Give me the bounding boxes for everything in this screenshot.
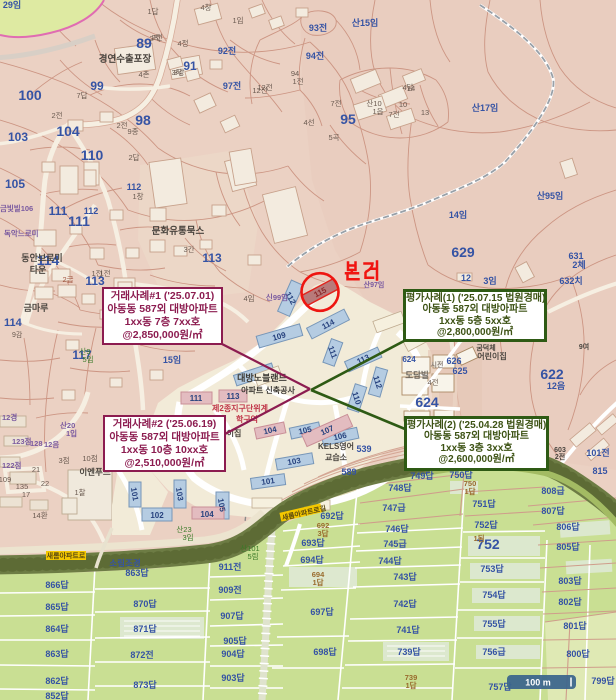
svg-text:92전: 92전 (218, 45, 236, 56)
svg-text:95: 95 (340, 111, 356, 127)
svg-text:743답: 743답 (393, 571, 417, 582)
svg-text:112: 112 (84, 206, 99, 216)
svg-text:5림: 5림 (247, 552, 258, 561)
svg-text:694답: 694답 (300, 554, 324, 565)
svg-text:863답: 863답 (125, 567, 149, 578)
svg-text:802답: 802답 (558, 596, 582, 607)
svg-text:589: 589 (341, 467, 356, 477)
svg-text:864답: 864답 (45, 623, 69, 634)
svg-text:독악느로미: 독악느로미 (4, 228, 39, 238)
svg-text:2답: 2답 (128, 152, 139, 162)
svg-text:10점: 10점 (82, 453, 97, 463)
svg-text:742답: 742답 (393, 598, 417, 609)
svg-text:104: 104 (200, 510, 214, 519)
svg-text:3임: 3임 (483, 275, 496, 286)
svg-text:904답: 904답 (221, 648, 245, 659)
svg-text:3점: 3점 (58, 455, 69, 465)
svg-text:629: 629 (451, 244, 475, 260)
svg-text:10: 10 (399, 100, 407, 109)
svg-text:863답: 863답 (45, 648, 69, 659)
svg-text:1됨: 1됨 (473, 533, 484, 543)
svg-text:111: 111 (49, 204, 68, 218)
svg-text:872전: 872전 (130, 649, 153, 660)
svg-text:754답: 754답 (482, 589, 506, 600)
svg-text:신99임: 신99임 (266, 292, 288, 302)
svg-text:1찰: 1찰 (74, 487, 85, 497)
svg-text:755답: 755답 (482, 618, 506, 629)
svg-text:693답: 693답 (301, 537, 325, 548)
svg-text:805답: 805답 (556, 541, 580, 552)
svg-text:금마루: 금마루 (24, 302, 49, 313)
svg-text:803답: 803답 (558, 575, 582, 586)
svg-text:4정: 4정 (177, 38, 188, 48)
svg-text:539: 539 (356, 444, 371, 454)
svg-text:102: 102 (150, 511, 164, 520)
svg-text:1입: 1입 (66, 428, 77, 438)
svg-text:1답: 1답 (147, 6, 158, 16)
svg-text:굼덕체: 굼덕체 (476, 343, 495, 352)
svg-text:12경: 12경 (2, 412, 17, 422)
svg-text:7답: 7답 (76, 90, 87, 100)
svg-text:697답: 697답 (310, 606, 334, 617)
svg-text:15임: 15임 (163, 354, 181, 365)
svg-text:911전: 911전 (219, 561, 242, 572)
svg-text:3작: 3작 (171, 67, 182, 77)
svg-text:746답: 746답 (385, 523, 409, 534)
svg-text:문화유통묵스: 문화유통묵스 (152, 225, 205, 237)
svg-text:4촌: 4촌 (138, 70, 149, 79)
svg-text:800답: 800답 (566, 648, 590, 659)
svg-text:105: 105 (5, 177, 25, 191)
svg-text:752답: 752답 (474, 519, 498, 530)
svg-text:경연수출포장: 경연수출포장 (99, 53, 152, 65)
svg-text:865답: 865답 (45, 601, 69, 612)
svg-text:2전: 2전 (116, 120, 127, 130)
svg-text:13: 13 (421, 108, 429, 117)
svg-text:123점: 123점 (12, 436, 32, 446)
svg-text:1임: 1임 (232, 16, 243, 25)
svg-text:852답: 852답 (45, 690, 69, 700)
svg-text:739답: 739답 (397, 646, 421, 657)
svg-text:1읍: 1읍 (372, 107, 383, 116)
svg-text:시전: 시전 (431, 360, 444, 369)
svg-text:어린이집: 어린이집 (477, 351, 506, 361)
svg-text:745급: 745급 (383, 539, 407, 549)
svg-text:4임: 4임 (243, 294, 254, 303)
svg-text:909전: 909전 (218, 584, 241, 595)
svg-text:622: 622 (540, 366, 564, 382)
svg-text:14환: 14환 (32, 510, 47, 520)
svg-text:100 m: 100 m (525, 678, 551, 688)
svg-text:799답: 799답 (591, 675, 615, 686)
svg-text:866답: 866답 (45, 579, 69, 590)
svg-text:타운: 타운 (30, 264, 47, 275)
svg-text:905답: 905답 (223, 635, 247, 646)
svg-text:2전: 2전 (51, 110, 62, 120)
svg-text:9감: 9감 (12, 331, 23, 339)
svg-text:112: 112 (127, 182, 142, 192)
svg-text:5임: 5임 (82, 355, 93, 364)
svg-text:624: 624 (402, 355, 416, 364)
svg-text:749답: 749답 (410, 470, 434, 481)
svg-text:747급: 747급 (382, 503, 406, 513)
svg-text:101: 101 (261, 476, 276, 487)
svg-text:751답: 751답 (472, 498, 496, 509)
svg-text:128: 128 (30, 439, 43, 448)
svg-text:1답: 1답 (312, 577, 323, 587)
svg-text:동안브로미: 동안브로미 (21, 252, 62, 263)
svg-text:12음: 12음 (547, 381, 565, 391)
svg-text:114: 114 (4, 317, 23, 329)
svg-text:1전: 1전 (292, 76, 303, 86)
svg-text:862답: 862답 (45, 675, 69, 686)
svg-text:2전: 2전 (555, 452, 565, 461)
svg-text:110: 110 (81, 147, 104, 163)
svg-text:94전: 94전 (306, 50, 324, 61)
svg-text:아파트 신축공사: 아파트 신축공사 (241, 385, 295, 395)
svg-text:97전: 97전 (223, 80, 241, 91)
svg-text:금빛빌106: 금빛빌106 (0, 203, 33, 213)
svg-text:98: 98 (135, 112, 151, 128)
svg-text:603: 603 (554, 447, 566, 454)
svg-text:806답: 806답 (556, 521, 580, 532)
svg-text:1창: 1창 (132, 192, 143, 201)
svg-text:3답: 3답 (317, 528, 328, 538)
svg-text:14임: 14임 (449, 209, 467, 220)
svg-text:12전: 12전 (252, 85, 267, 95)
svg-text:1답: 1답 (464, 486, 475, 496)
svg-text:808급: 808급 (541, 486, 565, 496)
svg-text:12음: 12음 (44, 439, 59, 449)
svg-text:산95임: 산95임 (537, 190, 564, 201)
svg-text:교습소: 교습소 (325, 452, 348, 462)
svg-text:626: 626 (446, 356, 461, 366)
svg-text:도담빌: 도담빌 (405, 370, 429, 380)
svg-text:1답: 1답 (405, 680, 416, 690)
svg-text:산15임: 산15임 (352, 17, 379, 28)
svg-text:624: 624 (415, 394, 439, 410)
svg-text:101전: 101전 (586, 447, 609, 458)
svg-text:새롬아파트로: 새롬아파트로 (47, 551, 86, 560)
svg-text:29임: 29임 (3, 0, 21, 10)
svg-text:7전: 7전 (388, 109, 399, 119)
svg-text:17: 17 (22, 490, 30, 499)
svg-text:7전: 7전 (330, 98, 341, 108)
svg-text:9여: 9여 (579, 342, 589, 351)
svg-text:93전: 93전 (309, 22, 327, 33)
svg-text:4창: 4창 (200, 3, 211, 12)
svg-text:3임: 3임 (182, 533, 193, 542)
svg-text:122점: 122점 (2, 460, 22, 470)
svg-text:104: 104 (56, 123, 80, 139)
svg-text:산97임: 산97임 (364, 280, 385, 289)
svg-text:873답: 873답 (133, 679, 157, 690)
svg-text:632치: 632치 (559, 275, 582, 286)
svg-text:5곡: 5곡 (328, 133, 339, 142)
svg-text:KELS영어: KELS영어 (318, 441, 354, 451)
svg-text:22: 22 (41, 479, 49, 488)
svg-text:625: 625 (452, 366, 467, 376)
svg-text:21: 21 (32, 465, 40, 474)
svg-text:4전: 4전 (427, 377, 438, 387)
svg-text:12: 12 (461, 273, 471, 283)
svg-text:815: 815 (592, 466, 607, 476)
svg-text:91: 91 (183, 59, 197, 73)
svg-text:4선: 4선 (303, 118, 314, 127)
svg-text:103: 103 (8, 130, 28, 144)
svg-text:113: 113 (227, 392, 240, 401)
svg-text:871답: 871답 (133, 623, 157, 634)
svg-text:9종: 9종 (127, 127, 138, 136)
svg-text:14: 14 (407, 84, 415, 93)
svg-text:870답: 870답 (133, 598, 157, 609)
svg-text:1전: 1전 (91, 268, 102, 278)
svg-text:2체: 2체 (572, 259, 585, 270)
svg-text:907답: 907답 (220, 610, 244, 621)
svg-text:903답: 903답 (221, 672, 245, 683)
svg-text:3간: 3간 (183, 244, 194, 254)
svg-text:소림조경: 소림조경 (109, 558, 140, 568)
svg-text:2급: 2급 (62, 275, 73, 284)
svg-text:801답: 801답 (563, 620, 587, 631)
svg-text:113: 113 (202, 251, 222, 265)
svg-text:111: 111 (190, 394, 203, 403)
svg-text:753답: 753답 (480, 563, 504, 574)
svg-text:741답: 741답 (396, 624, 420, 635)
svg-text:748답: 748답 (388, 482, 412, 493)
svg-text:산17임: 산17임 (472, 102, 499, 113)
svg-text:807답: 807답 (541, 505, 565, 516)
svg-text:744답: 744답 (378, 555, 402, 566)
svg-text:99: 99 (90, 79, 104, 93)
svg-text:756급: 756급 (482, 647, 506, 657)
svg-text:100: 100 (18, 87, 42, 103)
svg-text:제2종지구단위계: 제2종지구단위계 (212, 403, 268, 413)
svg-text:109: 109 (0, 475, 11, 484)
svg-text:2직: 2직 (149, 33, 160, 43)
svg-text:698답: 698답 (313, 646, 337, 657)
